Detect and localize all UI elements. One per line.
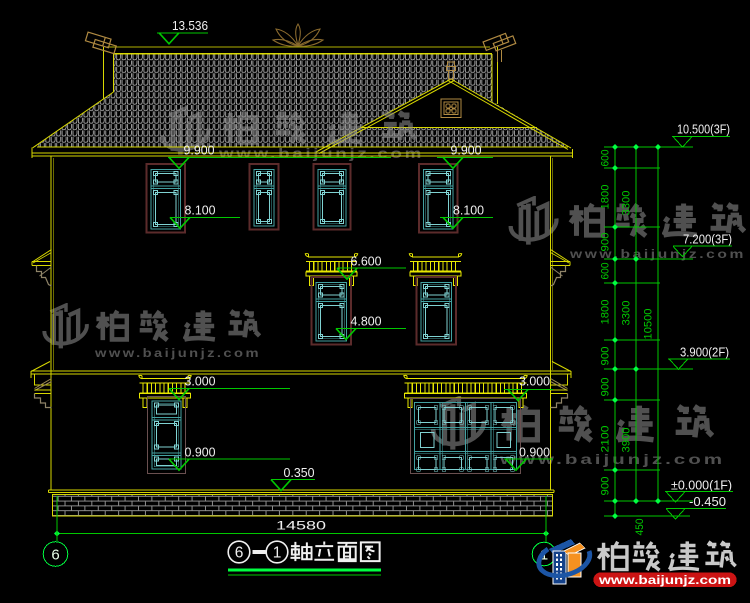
svg-text:3.000: 3.000 [185,374,216,389]
svg-text:4.800: 4.800 [351,314,382,329]
svg-text:8.100: 8.100 [453,203,484,218]
svg-text:www.baijunjz.com: www.baijunjz.com [598,573,731,587]
svg-text:900: 900 [600,477,612,496]
svg-text:1800: 1800 [600,300,612,325]
svg-text:900: 900 [600,378,612,397]
svg-text:6: 6 [51,547,59,564]
svg-text:6.600: 6.600 [351,254,382,269]
svg-text:0.900: 0.900 [185,445,216,460]
svg-text:13.536: 13.536 [172,18,208,33]
svg-text:0.900: 0.900 [519,445,550,460]
svg-text:7.200(3F): 7.200(3F) [683,233,732,247]
svg-text:3300: 3300 [621,191,633,216]
svg-text:-0.450: -0.450 [689,495,726,509]
svg-text:10.500(3F): 10.500(3F) [677,123,730,137]
svg-text:www.baijunjz.com: www.baijunjz.com [94,346,261,360]
svg-text:3900: 3900 [621,428,633,453]
svg-text:8.100: 8.100 [185,203,216,218]
svg-text:2100: 2100 [600,426,612,453]
svg-text:9.900: 9.900 [451,143,482,158]
svg-text:1800: 1800 [600,185,612,210]
svg-text:6: 6 [235,545,244,562]
svg-text:900: 900 [600,347,612,366]
svg-text:0.350: 0.350 [284,465,315,480]
svg-text:1: 1 [273,545,282,562]
svg-text:600: 600 [600,263,612,280]
svg-text:3300: 3300 [621,301,633,326]
svg-text:10500: 10500 [643,309,655,340]
svg-text:450: 450 [634,519,646,536]
svg-text:±0.000(1F): ±0.000(1F) [671,479,732,493]
svg-text:3.000: 3.000 [519,374,550,389]
svg-text:900: 900 [600,233,612,252]
svg-text:9.900: 9.900 [184,143,215,158]
svg-text:600: 600 [600,150,612,167]
svg-text:3.900(2F): 3.900(2F) [680,346,729,360]
svg-text:14580: 14580 [276,519,326,533]
